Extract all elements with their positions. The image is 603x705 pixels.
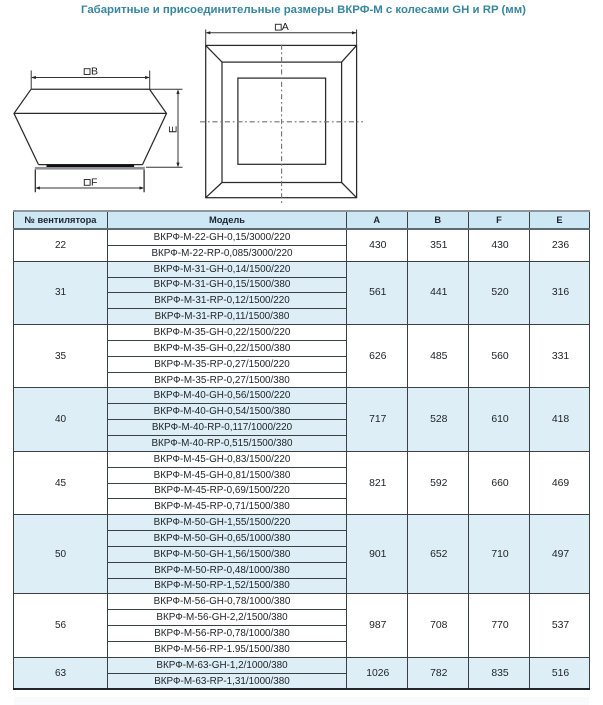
svg-text:F: F: [91, 176, 97, 188]
svg-text:A: A: [282, 21, 289, 33]
svg-text:B: B: [91, 66, 98, 78]
svg-text:E: E: [168, 126, 180, 133]
